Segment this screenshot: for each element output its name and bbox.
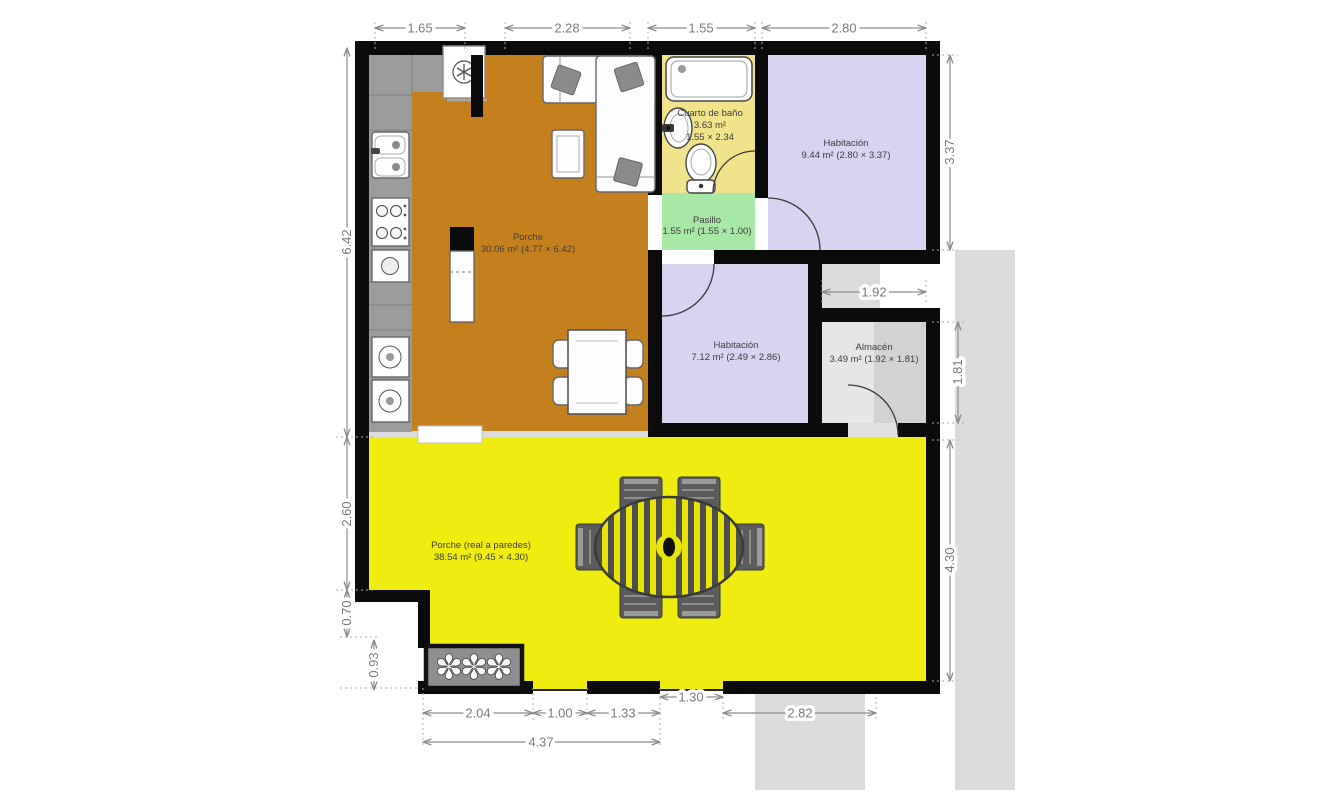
dimension-top-4: 2.80 <box>762 21 926 36</box>
wall-porch-bottom-2 <box>587 681 660 694</box>
door-step <box>418 426 482 443</box>
wall-stub-fridge <box>471 55 483 117</box>
terrain-strip-right <box>955 250 1015 790</box>
dim-label: 4.37 <box>528 735 553 750</box>
wall-left <box>355 41 369 602</box>
dim-label: 0.93 <box>366 652 381 677</box>
planter: ✽ ✽ ✽ <box>426 646 522 688</box>
dim-label: 4.30 <box>942 547 957 572</box>
dimension-left-1: 6.42 <box>339 48 354 437</box>
dim-label: 6.42 <box>339 229 354 254</box>
room-almacen-left <box>822 322 874 423</box>
dim-label: 2.28 <box>554 21 579 36</box>
wall-step-vertical <box>418 590 430 648</box>
washing-machine <box>372 337 409 377</box>
dim-label: 2.80 <box>831 21 856 36</box>
wall-porch-bottom-3 <box>723 681 940 694</box>
bathtub-drain <box>678 65 686 73</box>
label-almacen-area: 3.49 m² (1.92 × 1.81) <box>830 354 919 365</box>
kitchen-oven <box>372 250 409 282</box>
floor-plan-page: ✽ ✽ ✽ Porche 30.06 m² (4.77 × 6.42) Cuar… <box>0 0 1320 800</box>
dimension-bottom-3: 1.33 <box>587 706 660 721</box>
dimension-right-1: 3.37 <box>942 55 957 250</box>
kitchen-sink <box>371 132 409 178</box>
coffee-table <box>552 130 584 178</box>
wall-stub-kitchen <box>450 227 474 251</box>
label-pasillo-area: 1.55 m² (1.55 × 1.00) <box>663 226 752 237</box>
label-habitacion-1-name: Habitación <box>824 138 869 149</box>
dim-label: 1.92 <box>861 285 886 300</box>
wall-right-upper <box>926 41 940 264</box>
wall-bedroom2-almacen <box>808 250 822 437</box>
dim-label: 2.60 <box>339 501 354 526</box>
dimension-top-2: 2.28 <box>505 21 630 36</box>
dryer <box>372 380 409 422</box>
umbrella-hole <box>663 538 675 557</box>
kitchen-stove <box>372 198 409 246</box>
dim-label: 1.55 <box>688 21 713 36</box>
bathtub <box>666 57 752 101</box>
dim-label: 1.33 <box>610 706 635 721</box>
dining-chair <box>624 377 643 405</box>
dimension-right-3: 4.30 <box>942 440 957 681</box>
dining-chair <box>624 340 643 368</box>
dim-label: 2.82 <box>787 706 812 721</box>
dimension-bottom-total: 4.37 <box>423 735 660 750</box>
label-bano-size: 1.55 × 2.34 <box>686 132 734 143</box>
dim-label: 1.65 <box>407 21 432 36</box>
wall-south-right <box>898 423 940 437</box>
dimension-bottom-1: 2.04 <box>423 706 533 721</box>
wall-bath-bedroom1 <box>755 41 768 198</box>
dim-label: 3.37 <box>942 139 957 164</box>
dimension-bottom-2: 1.00 <box>533 706 587 721</box>
label-porche-interior-area: 30.06 m² (4.77 × 6.42) <box>481 244 575 255</box>
dim-label: 0.70 <box>339 600 354 625</box>
label-pasillo-name: Pasillo <box>693 215 721 226</box>
label-habitacion-1-area: 9.44 m² (2.80 × 3.37) <box>802 150 891 161</box>
label-porche-exterior-name: Porche (real a paredes) <box>431 540 531 551</box>
sink-tap <box>371 148 380 154</box>
dim-label: 1.30 <box>678 690 703 705</box>
wall-band-mid <box>714 250 940 264</box>
label-bano-area: 3.63 m² <box>694 120 726 131</box>
label-habitacion-2-area: 7.12 m² (2.49 × 2.86) <box>692 352 781 363</box>
dim-label: 1.00 <box>547 706 572 721</box>
dimension-left-2: 2.60 <box>339 437 354 590</box>
wall-living-bedroom2 <box>648 250 662 437</box>
label-bano-name: Cuarto de baño <box>677 108 743 119</box>
dimension-bottom-entrance: 1.30 <box>660 690 723 705</box>
dimension-left-4: 0.93 <box>366 640 381 690</box>
wall-south-left <box>648 423 848 437</box>
label-porche-interior-name: Porche <box>513 232 543 243</box>
wall-right-lower <box>926 308 940 694</box>
dimension-left-3: 0.70 <box>339 590 354 637</box>
label-habitacion-2-name: Habitación <box>714 340 759 351</box>
floor-plan-svg: ✽ ✽ ✽ Porche 30.06 m² (4.77 × 6.42) Cuar… <box>0 0 1320 800</box>
dimension-top-3: 1.55 <box>648 21 755 36</box>
plant-icon: ✽ <box>485 648 514 688</box>
wall-almacen-top <box>822 308 940 322</box>
dim-label: 2.04 <box>465 706 490 721</box>
almacen-door-threshold <box>848 423 898 437</box>
kitchen-cabinet <box>450 251 474 322</box>
toilet <box>686 144 716 193</box>
dimension-top-1: 1.65 <box>375 21 465 36</box>
kitchen-counter-top <box>412 55 445 92</box>
label-porche-exterior-area: 38.54 m² (9.45 × 4.30) <box>434 552 528 563</box>
label-almacen-name: Almacén <box>856 342 893 353</box>
room-almacen-right <box>874 322 926 423</box>
dim-label: 1.81 <box>950 359 965 384</box>
